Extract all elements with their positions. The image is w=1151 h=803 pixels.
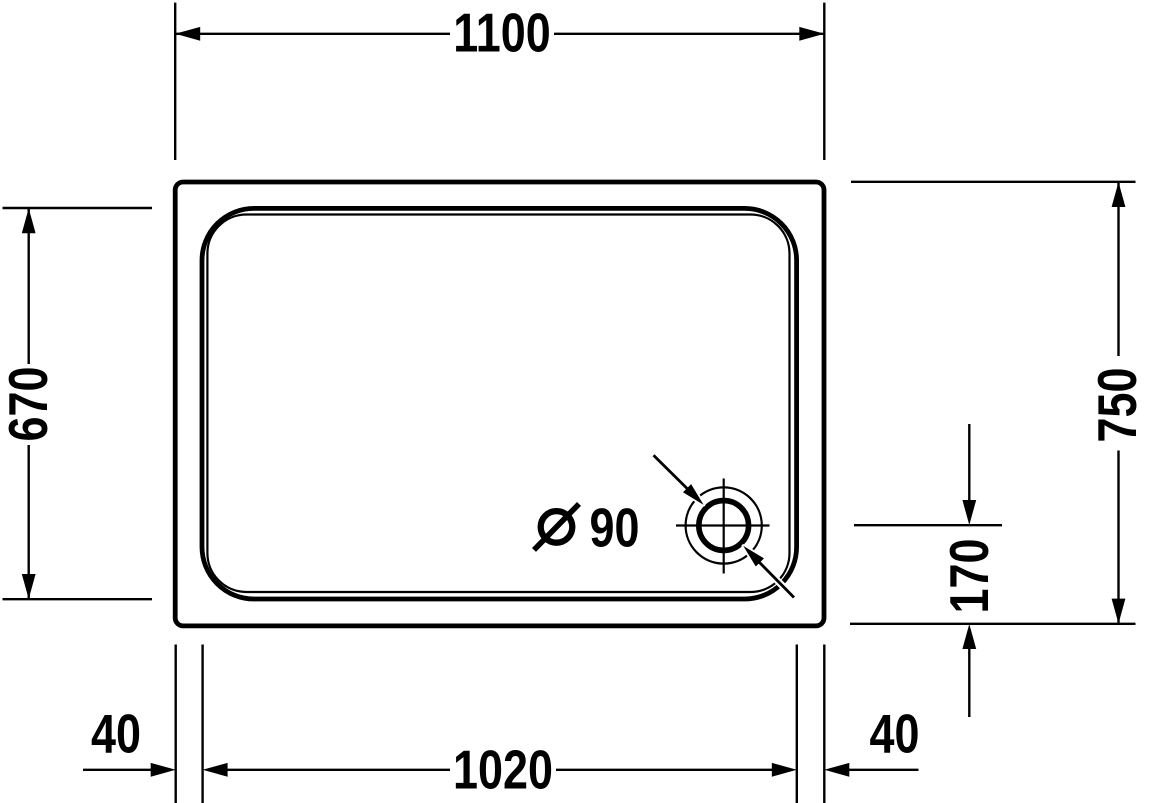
svg-text:1100: 1100 [453, 2, 550, 63]
svg-text:1020: 1020 [453, 739, 553, 800]
svg-text:40: 40 [91, 703, 141, 764]
svg-text:670: 670 [0, 367, 59, 442]
svg-text:750: 750 [1087, 368, 1148, 443]
svg-text:170: 170 [939, 539, 1000, 614]
svg-text:40: 40 [870, 703, 920, 764]
svg-text:90: 90 [590, 497, 640, 558]
